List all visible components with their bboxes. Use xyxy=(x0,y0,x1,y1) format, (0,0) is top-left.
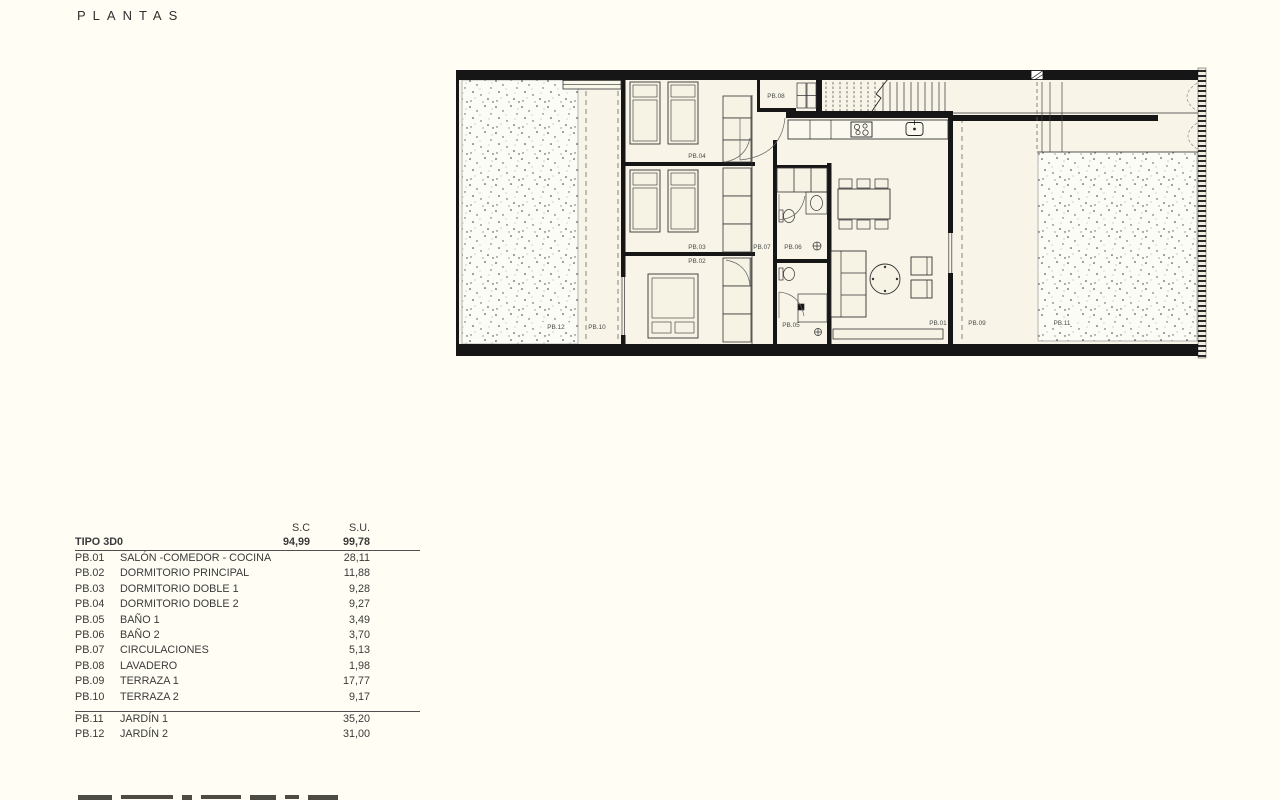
table-row: PB.02DORMITORIO PRINCIPAL11,88 xyxy=(75,566,420,581)
room-label-pb12: PB.12 xyxy=(547,324,565,331)
room-label-pb03: PB.03 xyxy=(688,244,706,251)
room-label-pb02: PB.02 xyxy=(688,258,706,265)
room-code: PB.09 xyxy=(75,674,120,689)
col-header-sc: S.C xyxy=(250,521,310,535)
room-su: 11,88 xyxy=(310,566,370,581)
page-title: PLANTAS xyxy=(77,8,184,23)
room-code: PB.01 xyxy=(75,551,120,566)
sideboard xyxy=(833,329,943,339)
type-su-total: 99,78 xyxy=(310,535,370,550)
room-su: 28,11 xyxy=(310,551,370,566)
room-code: PB.04 xyxy=(75,597,120,612)
sofa xyxy=(831,251,866,317)
table-row: PB.06BAÑO 23,70 xyxy=(75,628,420,643)
room-label-pb08: PB.08 xyxy=(767,93,785,100)
table-row: PB.08LAVADERO1,98 xyxy=(75,659,420,674)
living-window xyxy=(948,233,954,273)
room-name: DORMITORIO DOBLE 1 xyxy=(120,582,250,597)
type-name: TIPO 3D0 xyxy=(75,535,250,550)
room-code: PB.07 xyxy=(75,643,120,658)
table-row: PB.09TERRAZA 117,77 xyxy=(75,674,420,689)
room-su: 9,27 xyxy=(310,597,370,612)
col-header-su: S.U. xyxy=(310,521,370,535)
room-su: 1,98 xyxy=(310,659,370,674)
room-su: 35,20 xyxy=(310,712,370,727)
room-name: TERRAZA 1 xyxy=(120,674,250,689)
room-label-pb06: PB.06 xyxy=(784,244,802,251)
room-label-pb01: PB.01 xyxy=(929,320,947,327)
room-su: 5,13 xyxy=(310,643,370,658)
room-label-pb09: PB.09 xyxy=(968,320,986,327)
boundary-fence xyxy=(1198,68,1206,358)
room-label-pb11: PB.11 xyxy=(1054,320,1071,327)
table-header-row: S.C S.U. xyxy=(75,521,420,535)
table-row: PB.03DORMITORIO DOBLE 19,28 xyxy=(75,582,420,597)
room-name: TERRAZA 2 xyxy=(120,690,250,705)
coffee-table xyxy=(870,264,900,294)
room-name: BAÑO 2 xyxy=(120,628,250,643)
room-name: CIRCULACIONES xyxy=(120,643,250,658)
room-label-pb05: PB.05 xyxy=(782,322,800,329)
table-row: PB.05BAÑO 13,49 xyxy=(75,613,420,628)
sheet: { "title": "PLANTAS", "plan": { "room_la… xyxy=(0,0,1280,800)
room-name: DORMITORIO PRINCIPAL xyxy=(120,566,250,581)
room-code: PB.08 xyxy=(75,659,120,674)
floor-plan-drawing: PB.12 PB.10 PB.04 PB.03 PB.02 PB.07 PB.0… xyxy=(450,60,1215,365)
room-code: PB.05 xyxy=(75,613,120,628)
room-su: 31,00 xyxy=(310,727,370,742)
table-row: PB.01SALÓN -COMEDOR - COCINA28,11 xyxy=(75,551,420,566)
room-name: JARDÍN 2 xyxy=(120,727,250,742)
dining-set xyxy=(838,179,890,229)
wardrobes xyxy=(723,96,751,342)
room-label-pb07: PB.07 xyxy=(753,244,771,251)
floor-plan: PB.12 PB.10 PB.04 PB.03 PB.02 PB.07 PB.0… xyxy=(450,60,1215,365)
table-row: PB.07CIRCULACIONES5,13 xyxy=(75,643,420,658)
room-su: 17,77 xyxy=(310,674,370,689)
kitchen-counter xyxy=(788,120,948,139)
room-su: 3,70 xyxy=(310,628,370,643)
room-name: JARDÍN 1 xyxy=(120,712,250,727)
room-label-pb10: PB.10 xyxy=(588,324,606,331)
bed-principal xyxy=(648,274,698,338)
room-code: PB.11 xyxy=(75,712,120,727)
room-code: PB.12 xyxy=(75,727,120,742)
hall-closet xyxy=(777,168,827,192)
room-code: PB.03 xyxy=(75,582,120,597)
garden-1-area xyxy=(1038,152,1197,341)
room-su: 9,17 xyxy=(310,690,370,705)
terrace-window xyxy=(563,81,621,90)
clipped-text-fragment xyxy=(78,795,338,800)
room-su: 9,28 xyxy=(310,582,370,597)
areas-table: S.C S.U. TIPO 3D0 94,99 99,78 PB.01SALÓN… xyxy=(75,521,420,743)
type-sc-total: 94,99 xyxy=(250,535,310,550)
table-row: PB.04DORMITORIO DOBLE 29,27 xyxy=(75,597,420,612)
room-name: BAÑO 1 xyxy=(120,613,250,628)
room-name: DORMITORIO DOBLE 2 xyxy=(120,597,250,612)
pillar-hatched xyxy=(1031,71,1043,80)
room-name: LAVADERO xyxy=(120,659,250,674)
table-row: PB.12JARDÍN 231,00 xyxy=(75,727,420,742)
table-row: PB.10TERRAZA 29,17 xyxy=(75,690,420,705)
room-code: PB.06 xyxy=(75,628,120,643)
table-row: PB.11JARDÍN 135,20 xyxy=(75,712,420,727)
room-code: PB.02 xyxy=(75,566,120,581)
room-code: PB.10 xyxy=(75,690,120,705)
garden-2-area xyxy=(462,80,578,344)
room-su: 3,49 xyxy=(310,613,370,628)
room-name: SALÓN -COMEDOR - COCINA xyxy=(120,551,250,566)
room-label-pb04: PB.04 xyxy=(688,153,706,160)
type-total-row: TIPO 3D0 94,99 99,78 xyxy=(75,535,420,550)
bedroom-window xyxy=(621,277,626,335)
